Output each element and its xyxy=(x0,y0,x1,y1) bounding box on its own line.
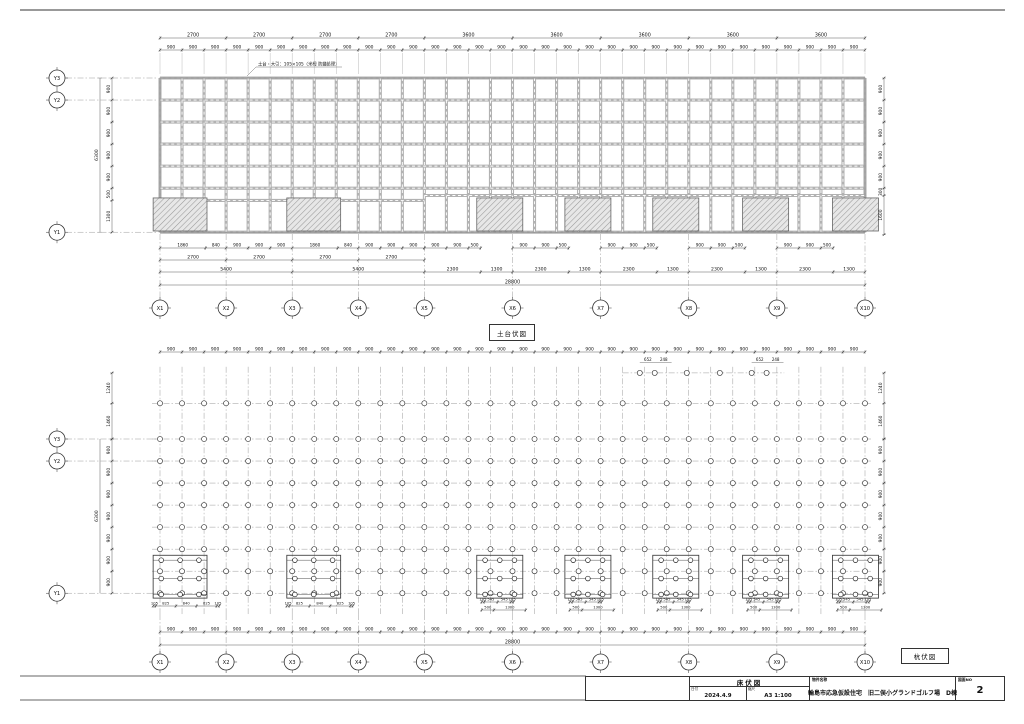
svg-text:825: 825 xyxy=(203,601,211,605)
svg-text:900: 900 xyxy=(878,173,884,182)
svg-text:900: 900 xyxy=(233,44,242,50)
svg-text:900: 900 xyxy=(563,44,572,50)
project-cell: 物件名称 輪島市応急仮設住宅 旧二俣小グランドゴルフ場 D棟 xyxy=(810,677,956,700)
cad-canvas: 土台・大引：105×105（米栂 防蟻処理）270027002700270036… xyxy=(0,0,1024,724)
svg-text:900: 900 xyxy=(387,242,395,247)
svg-text:6300: 6300 xyxy=(94,149,100,161)
svg-text:X9: X9 xyxy=(773,660,780,666)
svg-text:X3: X3 xyxy=(289,306,296,312)
svg-text:2700: 2700 xyxy=(187,32,199,38)
svg-text:1600: 1600 xyxy=(878,209,884,220)
svg-text:900: 900 xyxy=(718,44,727,50)
svg-text:Y3: Y3 xyxy=(53,437,60,443)
svg-text:900: 900 xyxy=(740,626,749,632)
svg-text:900: 900 xyxy=(762,626,771,632)
svg-text:900: 900 xyxy=(674,44,683,50)
svg-text:2700: 2700 xyxy=(187,254,199,260)
svg-text:900: 900 xyxy=(106,534,112,543)
svg-text:900: 900 xyxy=(106,107,112,116)
svg-text:1300: 1300 xyxy=(755,266,767,272)
svg-text:X2: X2 xyxy=(223,660,230,666)
svg-text:2300: 2300 xyxy=(711,266,723,272)
svg-text:900: 900 xyxy=(233,626,242,632)
svg-text:900: 900 xyxy=(740,346,749,352)
svg-text:X4: X4 xyxy=(355,660,363,666)
svg-text:1860: 1860 xyxy=(310,242,321,247)
svg-text:900: 900 xyxy=(878,107,884,116)
svg-text:900: 900 xyxy=(696,626,705,632)
svg-text:900: 900 xyxy=(607,346,616,352)
svg-text:900: 900 xyxy=(585,626,594,632)
svg-text:900: 900 xyxy=(299,44,308,50)
svg-text:900: 900 xyxy=(475,44,484,50)
svg-text:2300: 2300 xyxy=(535,266,547,272)
svg-text:900: 900 xyxy=(365,242,373,247)
svg-text:Y3: Y3 xyxy=(53,76,60,82)
svg-text:1300: 1300 xyxy=(681,605,691,609)
svg-text:Y2: Y2 xyxy=(53,98,60,104)
svg-text:900: 900 xyxy=(878,85,884,94)
svg-text:X2: X2 xyxy=(223,306,230,312)
project-name: 輪島市応急仮設住宅 旧二俣小グランドゴルフ場 D棟 xyxy=(808,688,957,700)
svg-text:900: 900 xyxy=(409,44,418,50)
svg-text:3600: 3600 xyxy=(550,32,562,38)
svg-text:500: 500 xyxy=(559,242,567,247)
svg-text:900: 900 xyxy=(652,626,661,632)
svg-text:900: 900 xyxy=(431,626,440,632)
svg-text:900: 900 xyxy=(541,44,550,50)
svg-text:X1: X1 xyxy=(157,306,164,312)
svg-text:500: 500 xyxy=(735,242,743,247)
svg-text:Y1: Y1 xyxy=(53,230,60,236)
svg-text:6300: 6300 xyxy=(94,510,100,522)
svg-text:900: 900 xyxy=(850,44,859,50)
svg-text:1300: 1300 xyxy=(593,605,603,609)
svg-text:900: 900 xyxy=(431,242,439,247)
svg-text:900: 900 xyxy=(211,44,220,50)
svg-text:900: 900 xyxy=(365,346,374,352)
svg-text:1300: 1300 xyxy=(667,266,679,272)
svg-text:900: 900 xyxy=(343,44,352,50)
svg-text:2700: 2700 xyxy=(385,32,397,38)
svg-text:900: 900 xyxy=(321,44,330,50)
svg-text:900: 900 xyxy=(806,626,815,632)
svg-text:3600: 3600 xyxy=(815,32,827,38)
svg-text:900: 900 xyxy=(409,242,417,247)
svg-text:2700: 2700 xyxy=(385,254,397,260)
svg-text:X8: X8 xyxy=(685,660,692,666)
svg-text:X5: X5 xyxy=(421,660,428,666)
svg-text:900: 900 xyxy=(563,626,572,632)
svg-text:900: 900 xyxy=(106,578,112,587)
svg-text:900: 900 xyxy=(475,346,484,352)
svg-text:900: 900 xyxy=(299,346,308,352)
svg-text:2700: 2700 xyxy=(253,32,265,38)
svg-text:900: 900 xyxy=(718,242,726,247)
svg-text:900: 900 xyxy=(106,490,112,499)
svg-text:900: 900 xyxy=(343,626,352,632)
svg-text:1460: 1460 xyxy=(106,415,112,426)
svg-text:900: 900 xyxy=(828,346,837,352)
svg-text:3600: 3600 xyxy=(727,32,739,38)
svg-text:900: 900 xyxy=(607,626,616,632)
svg-text:2700: 2700 xyxy=(253,254,265,260)
svg-text:1300: 1300 xyxy=(106,211,112,222)
svg-text:840: 840 xyxy=(344,242,352,247)
svg-text:900: 900 xyxy=(277,626,286,632)
svg-text:900: 900 xyxy=(850,346,859,352)
svg-text:1300: 1300 xyxy=(579,266,591,272)
svg-text:900: 900 xyxy=(233,346,242,352)
svg-text:105: 105 xyxy=(151,601,159,605)
svg-text:900: 900 xyxy=(106,85,112,94)
svg-text:900: 900 xyxy=(608,242,616,247)
svg-text:825: 825 xyxy=(162,601,170,605)
svg-text:900: 900 xyxy=(211,626,220,632)
pile-clusters xyxy=(153,555,878,598)
project-label: 物件名称 xyxy=(812,677,827,683)
svg-text:900: 900 xyxy=(696,242,704,247)
svg-text:900: 900 xyxy=(784,242,792,247)
svg-text:900: 900 xyxy=(784,44,793,50)
svg-text:900: 900 xyxy=(106,151,112,160)
svg-text:900: 900 xyxy=(167,44,176,50)
svg-text:900: 900 xyxy=(387,346,396,352)
sheet-number-label: 図面NO xyxy=(958,677,972,683)
svg-text:900: 900 xyxy=(718,626,727,632)
date-label: 日付 xyxy=(691,687,698,692)
svg-text:2300: 2300 xyxy=(623,266,635,272)
svg-text:900: 900 xyxy=(674,346,683,352)
svg-text:900: 900 xyxy=(365,626,374,632)
svg-text:Y1: Y1 xyxy=(53,591,60,597)
svg-text:105: 105 xyxy=(348,601,356,605)
svg-text:X4: X4 xyxy=(355,306,363,312)
svg-text:900: 900 xyxy=(106,129,112,138)
svg-text:1300: 1300 xyxy=(491,266,503,272)
svg-text:500: 500 xyxy=(840,605,848,609)
svg-text:900: 900 xyxy=(497,346,506,352)
svg-text:900: 900 xyxy=(255,626,264,632)
svg-text:840: 840 xyxy=(183,601,191,605)
svg-text:248: 248 xyxy=(772,357,780,362)
svg-text:1240: 1240 xyxy=(106,382,112,393)
svg-text:900: 900 xyxy=(878,490,884,499)
svg-text:900: 900 xyxy=(563,346,572,352)
pile-plan-label: 杭伏図 xyxy=(901,648,949,664)
svg-text:1300: 1300 xyxy=(771,605,781,609)
svg-text:900: 900 xyxy=(850,626,859,632)
svg-text:500: 500 xyxy=(647,242,655,247)
svg-text:900: 900 xyxy=(784,346,793,352)
svg-text:900: 900 xyxy=(652,346,661,352)
title-block: 床伏図 日付 2024.4.9 縮尺 A3 1:100 物件名称 輪島市応急仮設… xyxy=(585,676,1005,701)
svg-text:X8: X8 xyxy=(685,306,692,312)
svg-text:1460: 1460 xyxy=(878,415,884,426)
svg-text:900: 900 xyxy=(585,346,594,352)
svg-text:X1: X1 xyxy=(157,660,164,666)
svg-text:900: 900 xyxy=(520,242,528,247)
svg-text:3600: 3600 xyxy=(462,32,474,38)
svg-text:900: 900 xyxy=(585,44,594,50)
svg-text:900: 900 xyxy=(878,578,884,587)
svg-text:1300: 1300 xyxy=(843,266,855,272)
svg-text:900: 900 xyxy=(718,346,727,352)
svg-text:500: 500 xyxy=(660,605,668,609)
svg-text:500: 500 xyxy=(823,242,831,247)
sill-plan-label: 土台伏図 xyxy=(489,324,535,341)
svg-text:900: 900 xyxy=(784,626,793,632)
svg-text:900: 900 xyxy=(878,151,884,160)
svg-text:1860: 1860 xyxy=(177,242,188,247)
svg-text:900: 900 xyxy=(453,346,462,352)
svg-text:900: 900 xyxy=(674,626,683,632)
svg-text:900: 900 xyxy=(277,44,286,50)
svg-text:3600: 3600 xyxy=(639,32,651,38)
axis-bubbles: X1X1X2X2X3X3X4X4X5X5X6X6X7X7X8X8X9X9X10X… xyxy=(46,67,876,673)
svg-text:2700: 2700 xyxy=(319,32,331,38)
svg-text:900: 900 xyxy=(277,346,286,352)
svg-text:X10: X10 xyxy=(860,660,870,666)
svg-text:900: 900 xyxy=(497,44,506,50)
svg-text:900: 900 xyxy=(343,346,352,352)
svg-text:900: 900 xyxy=(519,626,528,632)
svg-text:900: 900 xyxy=(762,346,771,352)
svg-text:900: 900 xyxy=(255,242,263,247)
svg-text:900: 900 xyxy=(696,44,705,50)
svg-text:900: 900 xyxy=(878,129,884,138)
svg-text:900: 900 xyxy=(630,242,638,247)
svg-text:900: 900 xyxy=(255,346,264,352)
svg-text:900: 900 xyxy=(878,556,884,565)
title-block-empty-cell xyxy=(586,677,690,700)
svg-text:825: 825 xyxy=(296,601,304,605)
sill-note: 土台・大引：105×105（米栂 防蟻処理） xyxy=(247,61,342,77)
svg-text:900: 900 xyxy=(167,346,176,352)
svg-text:X3: X3 xyxy=(289,660,296,666)
svg-text:900: 900 xyxy=(607,44,616,50)
svg-text:900: 900 xyxy=(878,468,884,477)
drawing-title: 床伏図 xyxy=(690,677,809,687)
title-block-drawing-cell: 床伏図 日付 2024.4.9 縮尺 A3 1:100 xyxy=(690,677,810,700)
svg-text:X5: X5 xyxy=(421,306,428,312)
svg-text:900: 900 xyxy=(629,346,638,352)
svg-text:900: 900 xyxy=(106,173,112,182)
svg-text:900: 900 xyxy=(321,346,330,352)
svg-text:900: 900 xyxy=(189,346,198,352)
svg-text:900: 900 xyxy=(541,346,550,352)
svg-text:900: 900 xyxy=(453,626,462,632)
svg-text:X6: X6 xyxy=(509,306,516,312)
svg-text:900: 900 xyxy=(497,626,506,632)
svg-text:652: 652 xyxy=(756,357,764,362)
svg-text:900: 900 xyxy=(277,242,285,247)
svg-text:900: 900 xyxy=(387,44,396,50)
svg-text:900: 900 xyxy=(431,346,440,352)
svg-text:300: 300 xyxy=(878,187,884,196)
svg-text:900: 900 xyxy=(106,446,112,455)
svg-text:900: 900 xyxy=(475,626,484,632)
svg-text:2300: 2300 xyxy=(447,266,459,272)
date-value: 2024.4.9 xyxy=(704,693,731,700)
svg-text:900: 900 xyxy=(878,534,884,543)
svg-text:X7: X7 xyxy=(597,306,604,312)
svg-text:900: 900 xyxy=(806,242,814,247)
svg-text:900: 900 xyxy=(806,346,815,352)
svg-text:500: 500 xyxy=(471,242,479,247)
svg-text:900: 900 xyxy=(106,468,112,477)
svg-text:900: 900 xyxy=(806,44,815,50)
svg-text:900: 900 xyxy=(878,446,884,455)
svg-text:X10: X10 xyxy=(860,306,870,312)
svg-text:900: 900 xyxy=(519,44,528,50)
pile-dims: 6522486522481058258408251051058258408251… xyxy=(66,346,886,653)
svg-text:500: 500 xyxy=(750,605,758,609)
svg-text:825: 825 xyxy=(337,601,345,605)
svg-text:840: 840 xyxy=(316,601,324,605)
svg-text:900: 900 xyxy=(409,346,418,352)
svg-text:500: 500 xyxy=(572,605,580,609)
svg-text:2700: 2700 xyxy=(319,254,331,260)
svg-text:X7: X7 xyxy=(597,660,604,666)
svg-text:900: 900 xyxy=(387,626,396,632)
svg-text:900: 900 xyxy=(828,44,837,50)
svg-text:900: 900 xyxy=(189,626,198,632)
svg-text:900: 900 xyxy=(519,346,528,352)
svg-text:X6: X6 xyxy=(509,660,516,666)
svg-text:900: 900 xyxy=(762,44,771,50)
svg-text:1240: 1240 xyxy=(878,382,884,393)
sheet-number-value: 2 xyxy=(977,685,984,696)
svg-text:1300: 1300 xyxy=(505,605,515,609)
svg-text:900: 900 xyxy=(106,556,112,565)
svg-text:840: 840 xyxy=(212,242,220,247)
svg-text:105: 105 xyxy=(214,601,222,605)
svg-text:900: 900 xyxy=(878,512,884,521)
scale-label: 縮尺 xyxy=(748,687,755,692)
svg-text:X9: X9 xyxy=(773,306,780,312)
svg-text:2300: 2300 xyxy=(799,266,811,272)
svg-text:900: 900 xyxy=(211,346,220,352)
date-cell: 日付 2024.4.9 xyxy=(690,687,747,700)
svg-text:900: 900 xyxy=(299,626,308,632)
scale-value: A3 1:100 xyxy=(764,693,792,700)
svg-text:900: 900 xyxy=(453,44,462,50)
svg-text:900: 900 xyxy=(828,626,837,632)
svg-text:900: 900 xyxy=(740,44,749,50)
svg-text:900: 900 xyxy=(542,242,550,247)
svg-text:900: 900 xyxy=(696,346,705,352)
svg-text:900: 900 xyxy=(541,626,550,632)
svg-text:900: 900 xyxy=(453,242,461,247)
svg-text:900: 900 xyxy=(409,626,418,632)
svg-text:900: 900 xyxy=(629,626,638,632)
drawing-sheet: 土台・大引：105×105（米栂 防蟻処理）270027002700270036… xyxy=(0,0,1024,724)
svg-text:900: 900 xyxy=(365,44,374,50)
svg-text:900: 900 xyxy=(652,44,661,50)
svg-text:900: 900 xyxy=(255,44,264,50)
svg-text:900: 900 xyxy=(431,44,440,50)
sheet-number-cell: 図面NO 2 xyxy=(956,677,1004,700)
svg-text:1300: 1300 xyxy=(861,605,871,609)
svg-text:900: 900 xyxy=(233,242,241,247)
svg-text:500: 500 xyxy=(106,190,112,199)
sill-pedestals xyxy=(153,198,878,231)
svg-text:105: 105 xyxy=(285,601,293,605)
scale-cell: 縮尺 A3 1:100 xyxy=(747,687,809,700)
svg-text:248: 248 xyxy=(660,357,668,362)
svg-text:900: 900 xyxy=(167,626,176,632)
svg-text:500: 500 xyxy=(484,605,492,609)
svg-text:900: 900 xyxy=(629,44,638,50)
svg-text:652: 652 xyxy=(644,357,652,362)
svg-text:Y2: Y2 xyxy=(53,459,60,465)
svg-text:900: 900 xyxy=(106,512,112,521)
svg-text:900: 900 xyxy=(189,44,198,50)
svg-text:900: 900 xyxy=(321,626,330,632)
